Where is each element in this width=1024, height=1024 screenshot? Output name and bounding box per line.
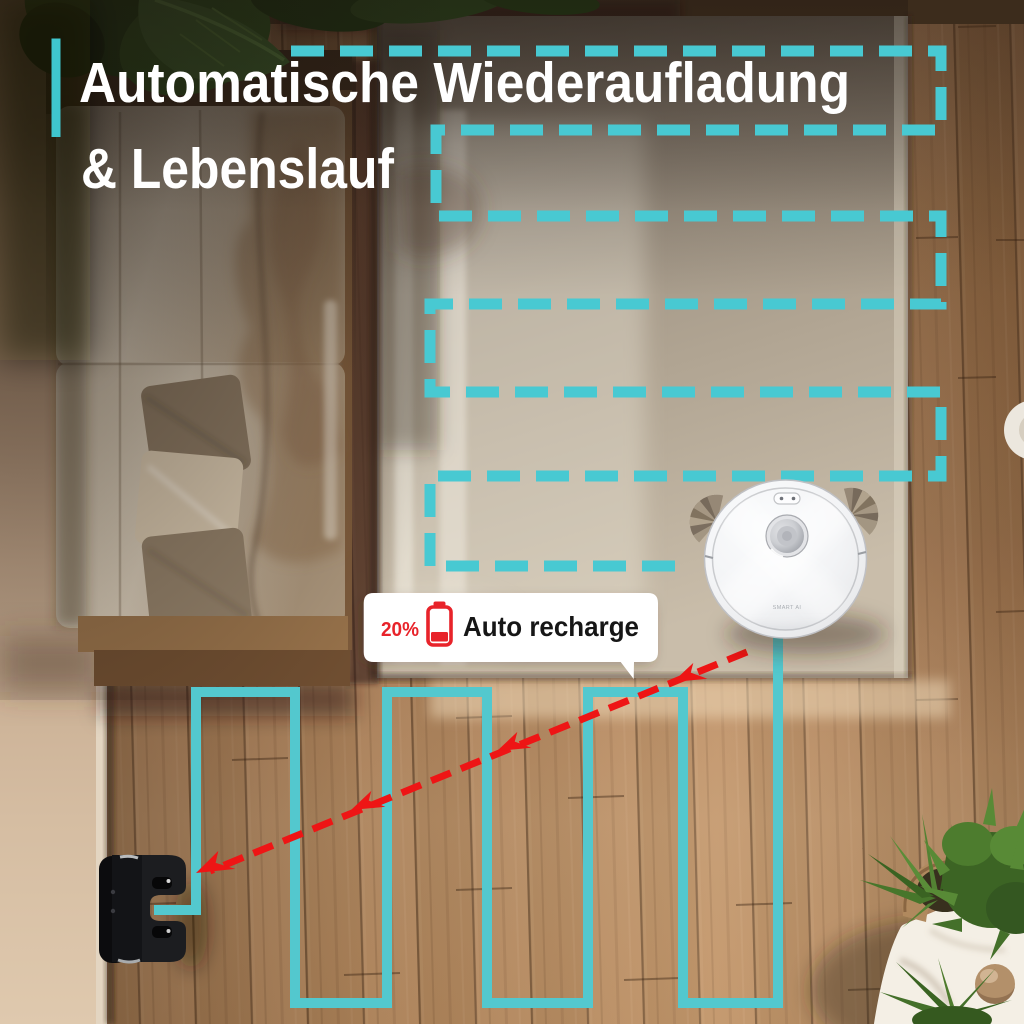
svg-text:Automatische Wiederaufladung: Automatische Wiederaufladung: [79, 51, 850, 115]
svg-text:SMART AI: SMART AI: [773, 605, 802, 611]
svg-text:Auto recharge: Auto recharge: [463, 611, 639, 642]
svg-text:& Lebenslauf: & Lebenslauf: [81, 137, 395, 201]
svg-text:20%: 20%: [381, 619, 419, 641]
